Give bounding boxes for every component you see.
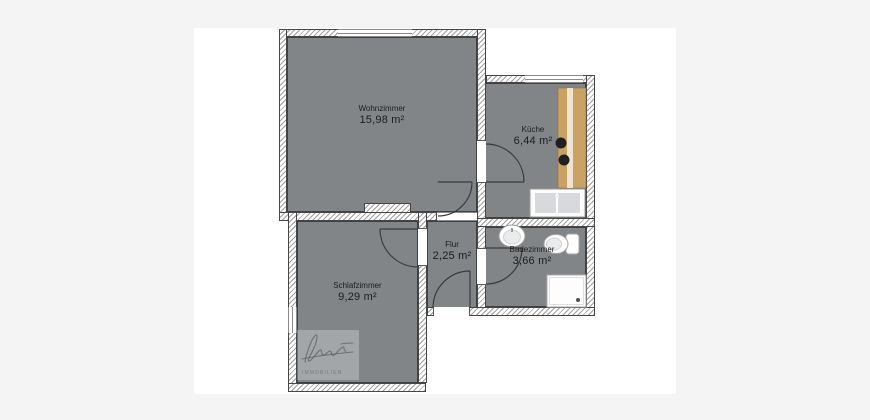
- watermark-text: IMMOBILIEN: [302, 370, 342, 376]
- wall-sz-bottom: [288, 383, 426, 392]
- label-badezimmer: Badezimmer 3,66 m²: [485, 245, 579, 268]
- label-wohnzimmer: Wohnzimmer 15,98 m²: [287, 104, 477, 127]
- floor-plan: Wohnzimmer 15,98 m² Küche 6,44 m² Flur 2…: [0, 0, 870, 420]
- door-opening-entrance: [433, 307, 470, 316]
- window-kueche: [525, 75, 583, 83]
- room-name: Flur: [427, 240, 477, 250]
- label-flur: Flur 2,25 m²: [427, 240, 477, 263]
- room-area: 2,25 m²: [427, 250, 477, 263]
- door-opening-schlafzimmer: [418, 228, 427, 266]
- room-area: 3,66 m²: [485, 255, 579, 268]
- room-flur: [427, 221, 477, 308]
- room-area: 6,44 m²: [485, 135, 581, 148]
- room-name: Schlafzimmer: [297, 281, 418, 291]
- window-schlafzimmer: [288, 307, 297, 333]
- label-schlafzimmer: Schlafzimmer 9,29 m²: [297, 281, 418, 304]
- wall-band-west: [279, 212, 437, 221]
- signature-logo: [297, 330, 359, 368]
- wall-east: [586, 75, 595, 316]
- room-name: Badezimmer: [485, 245, 579, 255]
- label-kueche: Küche 6,44 m²: [485, 125, 581, 148]
- wall-left: [279, 29, 287, 221]
- plan-canvas: [194, 28, 676, 394]
- wall-sz-left: [288, 212, 297, 392]
- passage-wohnzimmer-flur: [437, 212, 477, 221]
- room-area: 15,98 m²: [287, 114, 477, 127]
- room-name: Wohnzimmer: [287, 104, 477, 114]
- room-area: 9,29 m²: [297, 291, 418, 304]
- wall-band-east: [477, 218, 595, 227]
- watermark: IMMOBILIEN: [297, 330, 359, 380]
- window-wohnzimmer: [338, 29, 412, 37]
- room-name: Küche: [485, 125, 581, 135]
- room-kueche: [485, 83, 586, 218]
